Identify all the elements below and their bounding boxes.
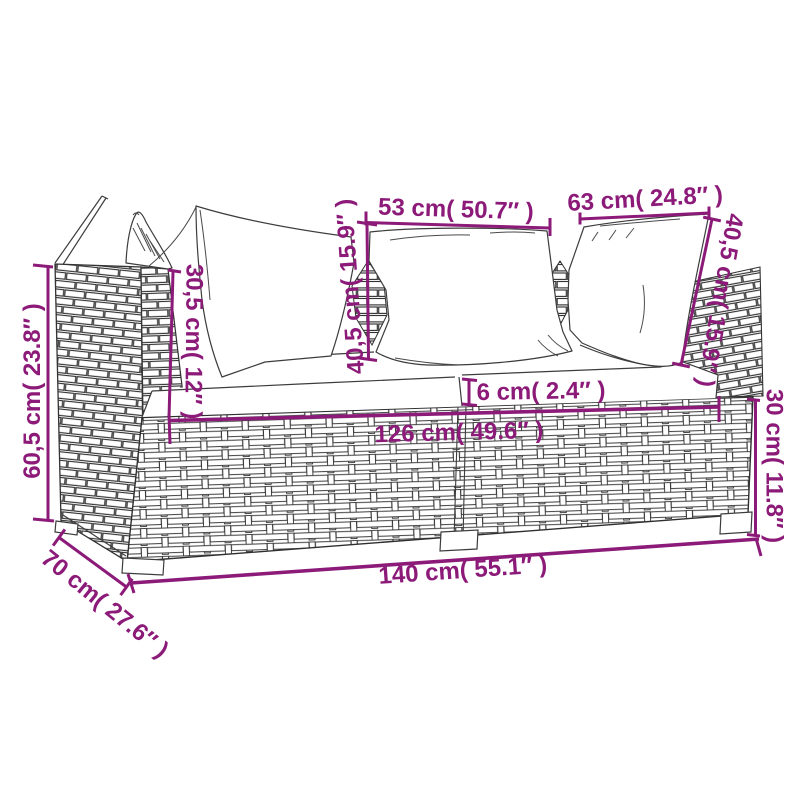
svg-text:6 cm( 2.4″ ): 6 cm( 2.4″ ) [476,377,605,406]
svg-text:53 cm( 50.7″ ): 53 cm( 50.7″ ) [378,194,534,226]
svg-text:60,5 cm( 23.8″ ): 60,5 cm( 23.8″ ) [19,303,46,479]
svg-text:30 cm( 11.8″ ): 30 cm( 11.8″ ) [761,389,788,543]
svg-text:126 cm( 49.6″ ): 126 cm( 49.6″ ) [374,417,544,448]
svg-text:30,5 cm( 12″ ): 30,5 cm( 12″ ) [179,264,207,420]
